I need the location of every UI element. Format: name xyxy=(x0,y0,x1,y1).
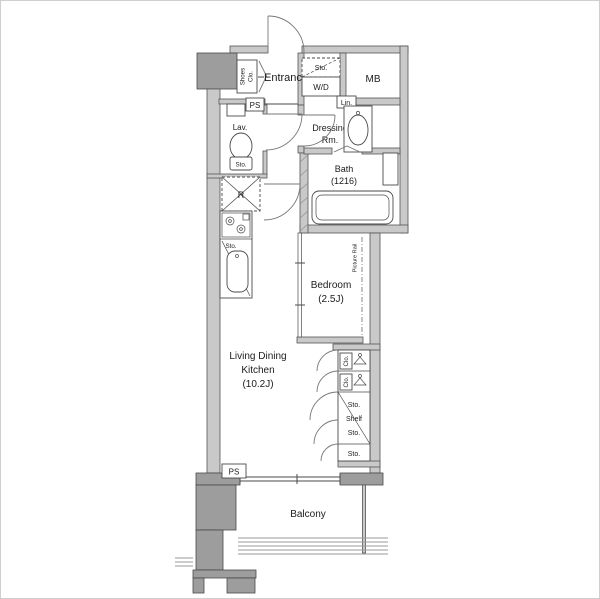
closet-lower-label: Clo. xyxy=(343,376,350,387)
sto-wd-label: Sto. xyxy=(315,65,328,72)
dressing-label-2: Rm. xyxy=(322,135,339,145)
wd-label: W/D xyxy=(313,83,329,92)
lav-window xyxy=(227,104,245,116)
floor-plan-page: Shoes Clo. Entrance PS Sto. W/D MB Lin. … xyxy=(0,0,600,599)
ps-upper-label: PS xyxy=(250,101,261,110)
entrance-door xyxy=(268,16,304,52)
ps-lower-label: PS xyxy=(229,468,240,477)
balcony-window xyxy=(240,474,340,484)
entrance-area: Shoes Clo. Entrance PS xyxy=(237,16,308,111)
bath-counter xyxy=(383,153,398,185)
toilet-storage-label: Sto. xyxy=(235,162,246,169)
lavatory-door xyxy=(266,114,302,150)
bath-label-2: (1216) xyxy=(331,176,357,186)
shoes-closet-label-2: Clo. xyxy=(248,71,255,82)
picture-rail-label: Picture Rail xyxy=(353,244,359,273)
balcony-label: Balcony xyxy=(290,509,326,520)
pillar xyxy=(197,53,237,89)
storage-column-mid-label: Sto. xyxy=(348,430,361,437)
entrance-label: Entrance xyxy=(264,72,308,84)
ldk-label-1: Living Dining xyxy=(229,351,286,362)
shoes-closet-label-1: Shoes xyxy=(240,68,247,86)
floor-plan: Shoes Clo. Entrance PS Sto. W/D MB Lin. … xyxy=(0,0,600,599)
storage-column-shelf-label: Shelf xyxy=(346,416,362,423)
ldk-label-2: Kitchen xyxy=(241,365,274,376)
bedroom-label-1: Bedroom xyxy=(311,280,352,291)
bath-label-1: Bath xyxy=(335,164,354,174)
balcony-side-wall xyxy=(193,485,256,593)
refrigerator-label: R xyxy=(238,190,245,200)
bedroom-label-2: (2.5J) xyxy=(318,294,344,305)
hallway-door xyxy=(264,184,300,220)
meter-box-label: MB xyxy=(366,74,381,85)
ldk-label-3: (10.2J) xyxy=(242,379,273,390)
lavatory-label: Lav. xyxy=(233,123,248,132)
sink-icon xyxy=(227,251,248,292)
storage-column-top-label: Sto. xyxy=(348,402,361,409)
bathroom: Bath (1216) xyxy=(312,146,398,224)
closet-upper-label: Clo. xyxy=(343,355,350,366)
dressing-room: Dressing Rm. xyxy=(304,106,372,152)
kitchen-storage-label: Sto. xyxy=(225,243,236,250)
closet-doors xyxy=(310,350,338,461)
kitchen: R Sto. xyxy=(220,177,260,298)
bedroom: Bedroom (2.5J) Picture Rail xyxy=(295,233,362,337)
washbasin-icon xyxy=(344,106,372,152)
bathtub-icon xyxy=(312,191,393,224)
bedroom-sliding-door xyxy=(295,233,305,337)
storage-column-bottom-label: Sto. xyxy=(348,451,361,458)
closet-column: Clo. Clo. Sto. Shelf Sto. Sto. xyxy=(310,350,370,461)
